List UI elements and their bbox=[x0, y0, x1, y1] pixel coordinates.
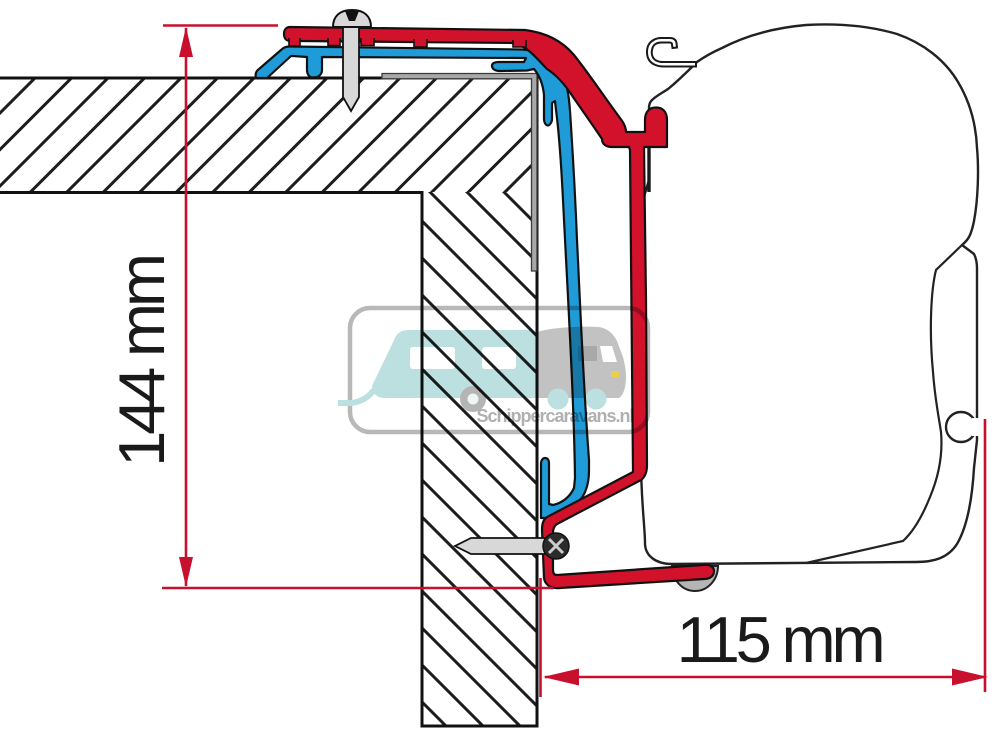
svg-text:Schippercaravans.nl: Schippercaravans.nl bbox=[476, 406, 633, 426]
svg-text:144 mm: 144 mm bbox=[105, 257, 178, 467]
svg-text:115 mm: 115 mm bbox=[677, 603, 882, 676]
